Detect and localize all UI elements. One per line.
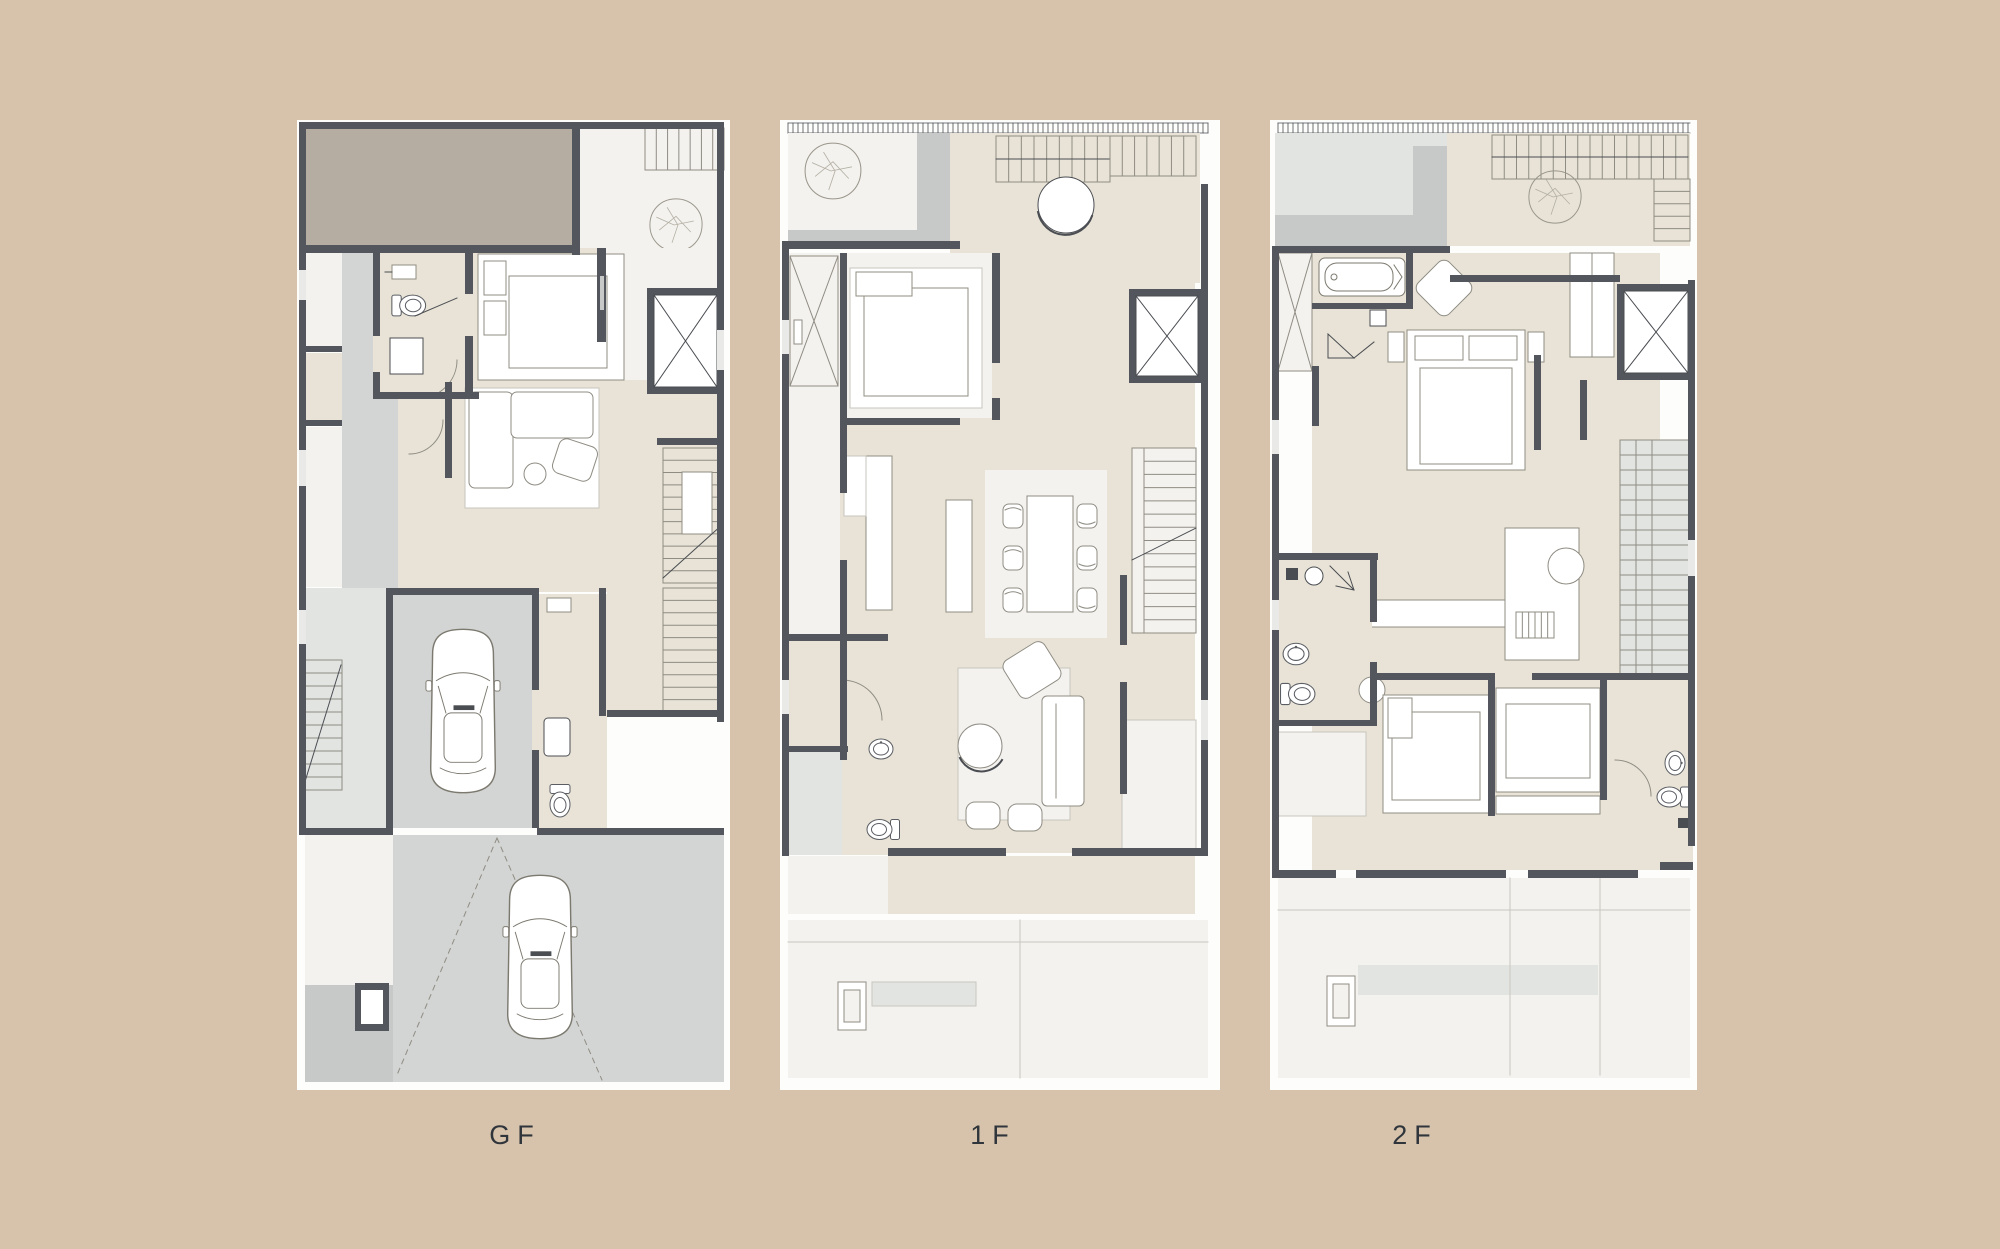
floorplan-drawing-2f — [1270, 120, 1697, 1090]
floor-label-2f: 2F — [1392, 1120, 1438, 1151]
floorplan-panel-gf — [297, 120, 730, 1090]
floorplan-panel-2f — [1270, 120, 1697, 1090]
floorplan-drawing-gf — [297, 120, 730, 1090]
floorplan-drawing-1f — [780, 120, 1220, 1090]
floor-label-1f: 1F — [970, 1120, 1016, 1151]
floorplan-sheet: GF 1F 2F — [0, 0, 2000, 1249]
floorplan-panel-1f — [780, 120, 1220, 1090]
floor-label-gf: GF — [489, 1120, 541, 1151]
